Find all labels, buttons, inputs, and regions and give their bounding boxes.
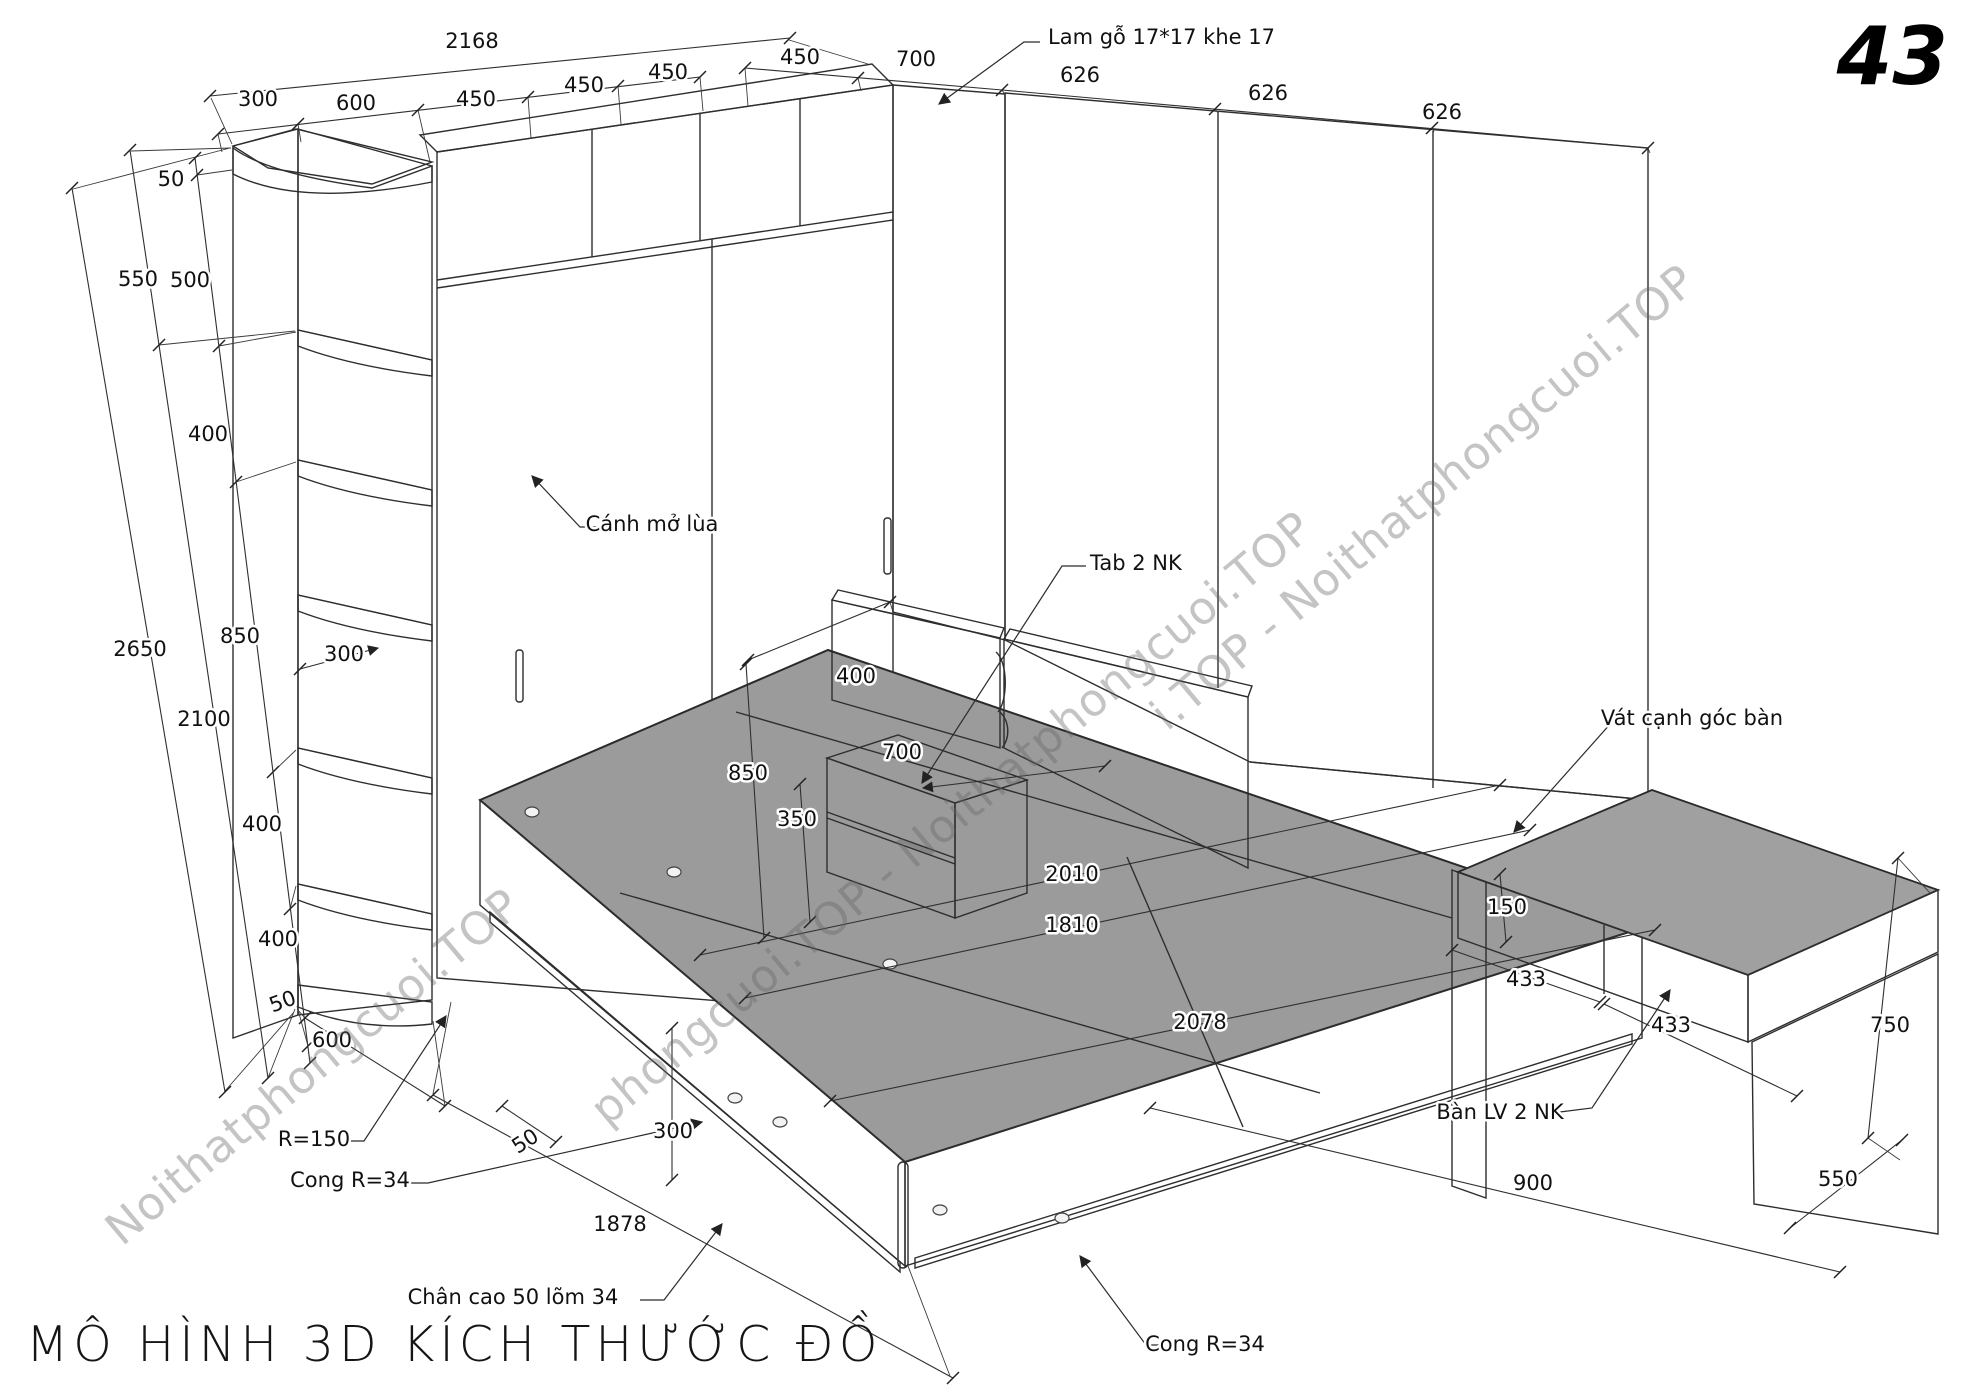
screw-cap — [525, 807, 539, 817]
shelf — [298, 595, 432, 641]
desk — [1452, 790, 1938, 1234]
dim-2078: 2078 — [1173, 1010, 1226, 1034]
dim-150-desk: 150 — [1487, 895, 1527, 919]
dim-700-top: 700 — [896, 47, 936, 71]
bed-rounded-corner — [898, 1162, 908, 1268]
dim-300-bed: 300 — [653, 1119, 693, 1143]
dim-626-3: 626 — [1422, 100, 1462, 124]
dim-2100: 2100 — [177, 707, 230, 731]
dim-2168: 2168 — [445, 29, 498, 53]
dim-450-2: 450 — [564, 73, 604, 97]
dim-2650: 2650 — [113, 637, 166, 661]
page-title: MÔ HÌNH 3D KÍCH THƯỚC ĐỒ — [26, 1316, 882, 1373]
dim-400-3: 400 — [258, 927, 298, 951]
dim-50-top: 50 — [158, 167, 185, 191]
leader-r150 — [348, 1016, 446, 1141]
dim-400-2: 400 — [242, 812, 282, 836]
wall-panels — [1005, 93, 1648, 800]
dim-300-top: 300 — [238, 87, 278, 111]
dim-850-left: 850 — [220, 624, 260, 648]
screw-cap — [1055, 1213, 1069, 1223]
furniture-3d-drawing: 2168300600450450450450700626626626Lam gỗ… — [0, 0, 1974, 1400]
dim-550-desk: 550 — [1818, 1167, 1858, 1191]
callout-lam-go: Lam gỗ 17*17 khe 17 — [1048, 24, 1275, 49]
callout-ban-lv: Bàn LV 2 NK — [1436, 1100, 1564, 1124]
dim-350-tab: 350 — [777, 807, 817, 831]
callout-canh-mo-lua: Cánh mở lùa — [586, 512, 719, 536]
screw-cap — [773, 1117, 787, 1127]
dim-450-1: 450 — [456, 87, 496, 111]
leader-lines — [348, 42, 1670, 1345]
door-handle — [516, 650, 523, 702]
dim-700-tab: 700 — [882, 740, 922, 764]
callout-vat-canh: Vát cạnh góc bàn — [1601, 706, 1783, 730]
dim-50-left-bottom: 50 — [266, 986, 299, 1018]
dim-626-2: 626 — [1248, 81, 1288, 105]
dim-850-tab: 850 — [728, 761, 768, 785]
dim-626-1: 626 — [1060, 63, 1100, 87]
dim-550: 550 — [118, 267, 158, 291]
screw-cap — [667, 867, 681, 877]
corner-shelf-unit — [233, 129, 432, 1038]
dim-900: 900 — [1513, 1171, 1553, 1195]
shelf — [298, 748, 432, 794]
screw-cap — [728, 1093, 742, 1103]
callout-tab-2nk: Tab 2 NK — [1089, 551, 1183, 575]
dim-750: 750 — [1870, 1013, 1910, 1037]
dim-450-3: 450 — [648, 60, 688, 84]
callout-cong-r34-bottom: Cong R=34 — [1145, 1332, 1265, 1356]
dim-400-tab: 400 — [836, 664, 876, 688]
bed — [480, 650, 1642, 1272]
callout-cong-r34-left: Cong R=34 — [290, 1168, 410, 1192]
dim-50-bed: 50 — [507, 1124, 542, 1159]
wood-slat-wall — [893, 85, 1005, 640]
dim-1810: 1810 — [1045, 913, 1098, 937]
dim-450-4: 450 — [780, 45, 820, 69]
dim-2010: 2010 — [1045, 862, 1098, 886]
dim-433-2: 433 — [1651, 1013, 1691, 1037]
screw-cap — [933, 1205, 947, 1215]
drawing-page: 2168300600450450450450700626626626Lam gỗ… — [0, 0, 1974, 1400]
page-number: 43 — [1837, 10, 1948, 103]
dim-300-shelf: 300 — [324, 642, 364, 666]
dim-433-1: 433 — [1506, 967, 1546, 991]
unit-base — [298, 985, 432, 1026]
door-handle — [884, 518, 891, 574]
dim-1878: 1878 — [593, 1212, 646, 1236]
callout-r150: R=150 — [278, 1127, 350, 1151]
shelf — [298, 330, 432, 376]
leader-chan-cao — [640, 1224, 722, 1300]
corner-shelves — [298, 330, 432, 930]
dimension-labels: 2168300600450450450450700626626626Lam gỗ… — [113, 24, 1910, 1356]
dim-600-bottom: 600 — [312, 1028, 352, 1052]
dim-400-1: 400 — [188, 422, 228, 446]
dim-600-top: 600 — [336, 91, 376, 115]
shelf — [298, 884, 432, 930]
shelf — [298, 460, 432, 506]
callout-chan-cao: Chân cao 50 lõm 34 — [408, 1285, 619, 1309]
dim-500: 500 — [170, 268, 210, 292]
